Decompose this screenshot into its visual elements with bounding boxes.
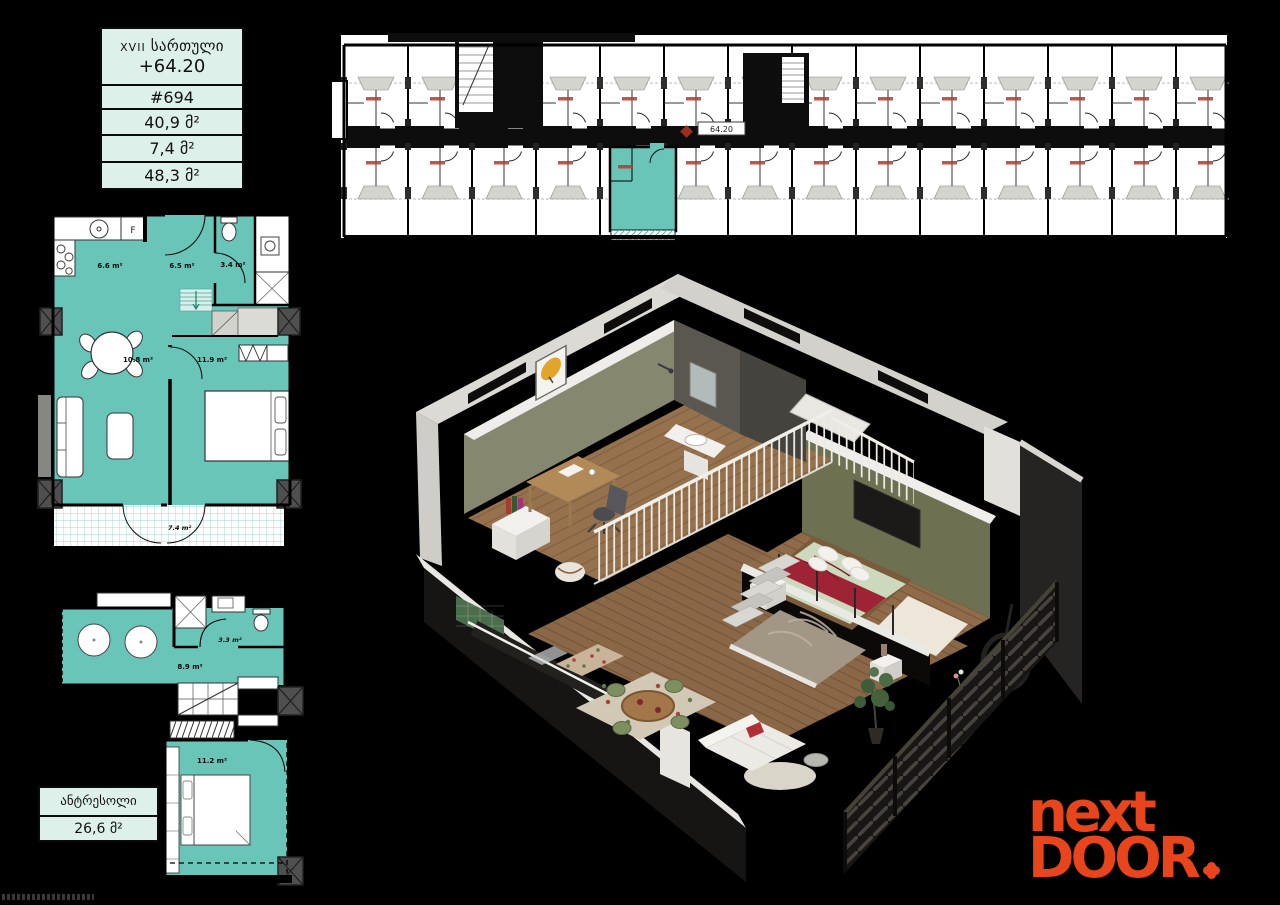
bathroom-area-label: 3.4 m² [220,261,245,269]
marker-elevation-label: 64.20 [710,125,733,134]
mezzanine-info-card: ანტრესოლი 26,6 მ² [38,786,159,842]
stair-core-2 [743,53,809,135]
mezz-hall-area-label: 8.9 m² [177,663,202,671]
unit-number: #694 [102,84,242,108]
floor-row: XVII სართული +64.20 [102,29,242,84]
toilet-icon [254,615,268,631]
highlighted-unit [610,143,676,240]
dining-table-icon [91,332,133,374]
entry-corridor [238,308,278,336]
brand-logo: next DOOR [1028,790,1218,882]
site-plan-body [331,33,1232,240]
poster: XVII სართული +64.20 #694 40,9 მ² 7,4 მ² … [0,0,1280,905]
shaft-strip [38,395,51,477]
logo-word-door: DOOR [1028,826,1197,891]
mezz-bedroom-area-label: 11.2 m² [197,757,227,765]
sofa-icon [57,397,83,477]
fine-print [2,894,94,900]
render-dining-table [622,691,674,721]
closet-icon [166,747,179,873]
floor-roman: XVII [120,41,146,54]
bed-icon [194,775,250,845]
area-balcony: 7,4 მ² [102,134,242,161]
area-main: 40,9 მ² [102,108,242,134]
render-sink [685,435,707,446]
apartment-plan-level1: 7.4 m² F [35,205,325,565]
stair-core-1 [455,39,543,128]
isometric-render [408,266,1084,882]
fridge-label: F [130,226,135,236]
render-shower-head [669,369,674,374]
mezzanine-title: ანტრესოლი [40,788,157,815]
bedroom-area-label: 11.9 m² [197,356,227,364]
living-area-label: 10.8 m² [123,356,153,364]
sink-icon [90,220,108,238]
unit-info-card: XVII სართული +64.20 #694 40,9 მ² 7,4 მ² … [100,27,244,190]
floor-word: სართული [151,37,224,55]
kitchen-area-label: 6.6 m² [97,262,122,270]
logo-dot-icon [1205,864,1218,877]
area-total: 48,3 მ² [102,161,242,188]
hall-area-label: 6.5 m² [169,262,194,270]
balcony-area-label: 7.4 m² [168,524,192,532]
floor-elevation: +64.20 [139,56,206,77]
mezzanine-area: 26,6 მ² [40,815,157,840]
building-site-plan: 64.20 [330,33,1232,242]
toilet-icon [222,223,236,241]
render-pouf [555,562,585,582]
mezz-bathroom-area-label: 3.3 m² [218,636,242,644]
apartment-plan-mezzanine: 3.3 m² 8.9 m² 11.2 m² [50,585,310,895]
mezz-stairs [170,677,278,738]
